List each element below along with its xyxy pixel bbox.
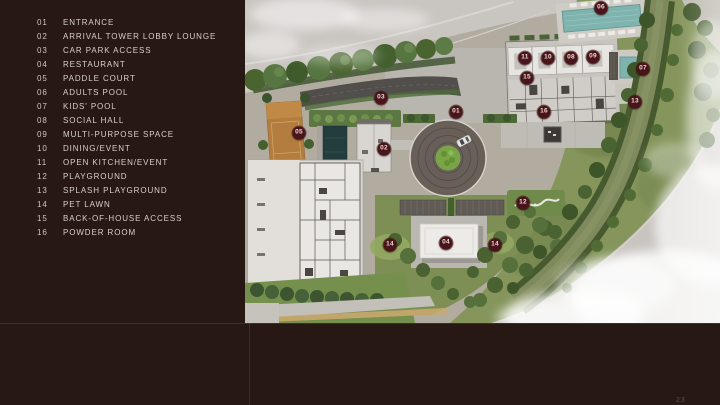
legend-item-label: MULTI-PURPOSE SPACE bbox=[63, 130, 174, 139]
legend-item-number: 12 bbox=[37, 172, 63, 181]
legend-item-number: 01 bbox=[37, 18, 63, 27]
plan-marker: 14 bbox=[489, 239, 502, 252]
legend-item-label: POWDER ROOM bbox=[63, 228, 136, 237]
legend-item-number: 06 bbox=[37, 88, 63, 97]
plan-marker-number: 16 bbox=[540, 109, 548, 116]
plan-marker-number: 03 bbox=[377, 95, 385, 102]
plan-marker: 12 bbox=[517, 197, 530, 210]
legend-item-label: SOCIAL HALL bbox=[63, 116, 124, 125]
legend-item: 04 RESTAURANT bbox=[37, 57, 216, 71]
plan-marker: 16 bbox=[538, 106, 551, 119]
legend-item-label: DINING/EVENT bbox=[63, 144, 131, 153]
legend-item: 03 CAR PARK ACCESS bbox=[37, 43, 216, 57]
legend-item: 09 MULTI-PURPOSE SPACE bbox=[37, 127, 216, 141]
plan-marker: 06 bbox=[595, 2, 608, 15]
legend-item-label: PADDLE COURT bbox=[63, 74, 136, 83]
legend-item-label: BACK-OF-HOUSE ACCESS bbox=[63, 214, 182, 223]
legend-item-number: 15 bbox=[37, 214, 63, 223]
legend-item-number: 09 bbox=[37, 130, 63, 139]
plan-marker-number: 08 bbox=[567, 55, 575, 62]
plan-marker-number: 11 bbox=[521, 55, 528, 62]
plan-marker: 05 bbox=[293, 127, 306, 140]
legend-item: 10 DINING/EVENT bbox=[37, 141, 216, 155]
legend-item-number: 03 bbox=[37, 46, 63, 55]
legend-item-number: 14 bbox=[37, 200, 63, 209]
legend-item: 05 PADDLE COURT bbox=[37, 71, 216, 85]
legend-item-number: 10 bbox=[37, 144, 63, 153]
legend-item: 13 SPLASH PLAYGROUND bbox=[37, 184, 216, 198]
plan-marker-number: 02 bbox=[380, 146, 388, 153]
legend-item-label: KIDS' POOL bbox=[63, 102, 117, 111]
legend-item-label: PLAYGROUND bbox=[63, 172, 127, 181]
page-number: 23 bbox=[676, 397, 686, 404]
legend-panel: 01 ENTRANCE 02 ARRIVAL TOWER LOBBY LOUNG… bbox=[0, 0, 245, 323]
plan-marker-number: 05 bbox=[295, 130, 303, 137]
plan-marker: 15 bbox=[521, 72, 534, 85]
legend-item-label: ADULTS POOL bbox=[63, 88, 128, 97]
legend-item-label: PET LAWN bbox=[63, 200, 111, 209]
brochure-page: 01 ENTRANCE 02 ARRIVAL TOWER LOBBY LOUNG… bbox=[0, 0, 720, 405]
legend-item: 16 POWDER ROOM bbox=[37, 226, 216, 240]
legend-item: 12 PLAYGROUND bbox=[37, 170, 216, 184]
plan-marker: 13 bbox=[629, 96, 642, 109]
legend-item: 07 KIDS' POOL bbox=[37, 99, 216, 113]
site-plan: 01 02 03 04 05 06 07 08 09 10 11 12 13 1… bbox=[245, 0, 720, 323]
legend-item-number: 16 bbox=[37, 228, 63, 237]
legend-item-number: 05 bbox=[37, 74, 63, 83]
legend-list: 01 ENTRANCE 02 ARRIVAL TOWER LOBBY LOUNG… bbox=[37, 15, 216, 240]
legend-item-number: 08 bbox=[37, 116, 63, 125]
legend-item-number: 11 bbox=[37, 158, 63, 167]
legend-item-number: 07 bbox=[37, 102, 63, 111]
plan-marker: 14 bbox=[384, 239, 397, 252]
plan-marker-number: 07 bbox=[639, 66, 647, 73]
plan-marker-number: 12 bbox=[519, 200, 527, 207]
legend-item-label: OPEN KITCHEN/EVENT bbox=[63, 158, 168, 167]
plan-marker: 03 bbox=[375, 92, 388, 105]
plan-marker: 07 bbox=[637, 63, 650, 76]
legend-item-label: RESTAURANT bbox=[63, 60, 126, 69]
plan-marker-number: 14 bbox=[491, 242, 499, 249]
plan-marker: 11 bbox=[519, 52, 532, 65]
plan-marker-number: 09 bbox=[589, 54, 597, 61]
legend-item: 15 BACK-OF-HOUSE ACCESS bbox=[37, 212, 216, 226]
legend-item: 08 SOCIAL HALL bbox=[37, 113, 216, 127]
legend-item-label: ENTRANCE bbox=[63, 18, 114, 27]
plan-marker-number: 13 bbox=[631, 99, 639, 106]
legend-item-number: 04 bbox=[37, 60, 63, 69]
plan-markers: 01 02 03 04 05 06 07 08 09 10 11 12 13 1… bbox=[245, 0, 720, 323]
plan-marker-number: 10 bbox=[544, 55, 552, 62]
horizontal-divider bbox=[0, 323, 720, 324]
plan-marker: 01 bbox=[450, 106, 463, 119]
plan-marker: 08 bbox=[565, 52, 578, 65]
legend-item-number: 13 bbox=[37, 186, 63, 195]
legend-item: 06 ADULTS POOL bbox=[37, 85, 216, 99]
plan-marker: 10 bbox=[542, 52, 555, 65]
plan-marker-number: 15 bbox=[523, 75, 531, 82]
legend-item: 01 ENTRANCE bbox=[37, 15, 216, 29]
plan-marker-number: 01 bbox=[452, 109, 460, 116]
plan-marker-number: 04 bbox=[442, 240, 450, 247]
legend-item-label: CAR PARK ACCESS bbox=[63, 46, 151, 55]
plan-marker: 09 bbox=[587, 51, 600, 64]
legend-item-label: ARRIVAL TOWER LOBBY LOUNGE bbox=[63, 32, 216, 41]
legend-item-label: SPLASH PLAYGROUND bbox=[63, 186, 168, 195]
plan-marker-number: 14 bbox=[386, 242, 394, 249]
legend-item: 11 OPEN KITCHEN/EVENT bbox=[37, 155, 216, 169]
legend-item: 02 ARRIVAL TOWER LOBBY LOUNGE bbox=[37, 29, 216, 43]
vertical-divider bbox=[249, 323, 250, 405]
legend-item-number: 02 bbox=[37, 32, 63, 41]
plan-marker-number: 06 bbox=[597, 5, 605, 12]
legend-item: 14 PET LAWN bbox=[37, 198, 216, 212]
plan-marker: 02 bbox=[378, 143, 391, 156]
plan-marker: 04 bbox=[440, 237, 453, 250]
